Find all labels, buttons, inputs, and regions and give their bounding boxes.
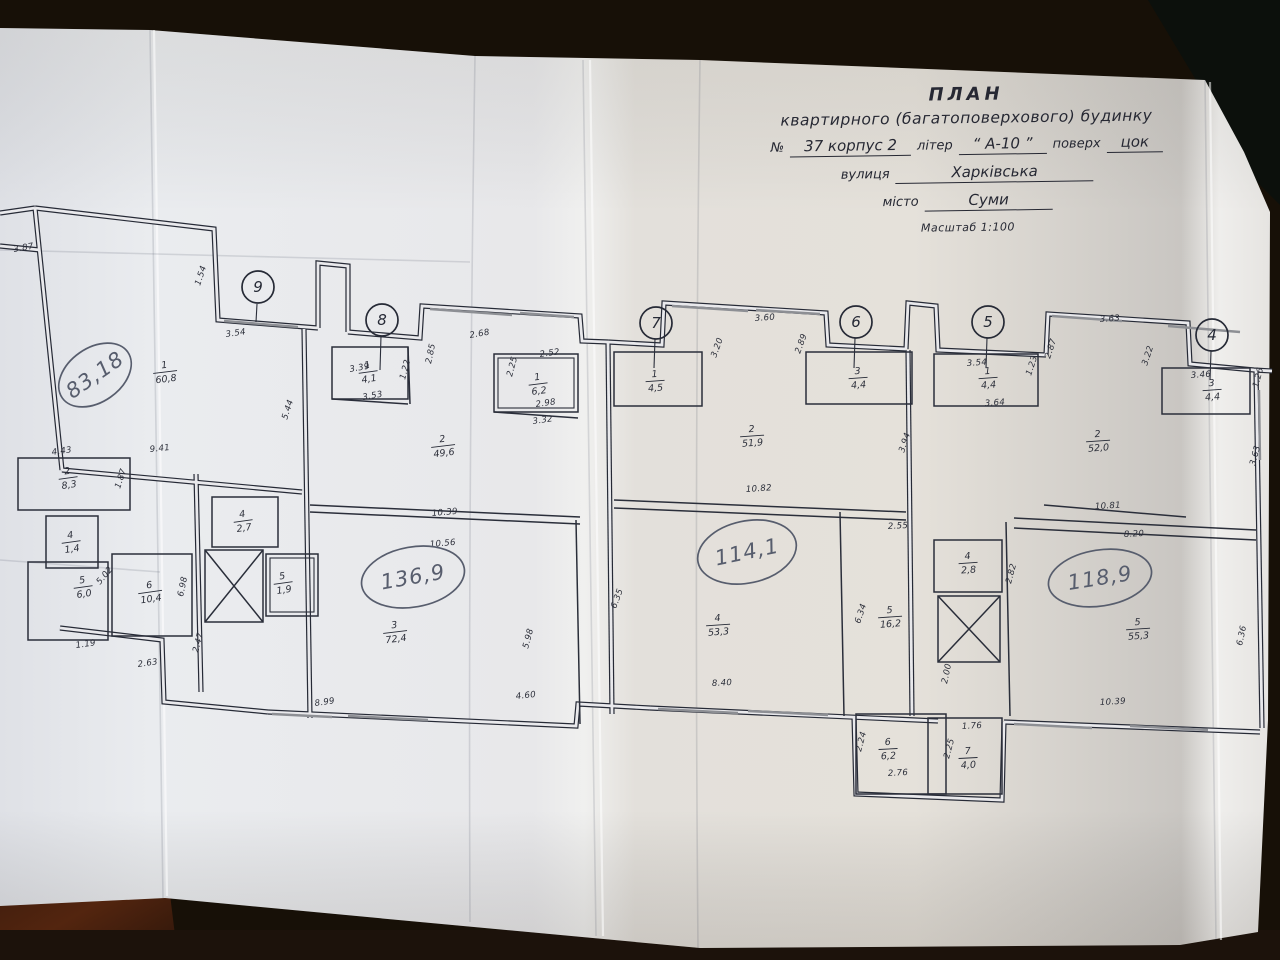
room-area: 4,4 bbox=[851, 379, 867, 391]
street-label: вулиця bbox=[841, 167, 890, 183]
room-number: 5 bbox=[1134, 617, 1141, 628]
liter-label: літер bbox=[917, 138, 953, 153]
axis-number-9: 9 bbox=[253, 278, 263, 296]
photo-of-floor-plan: 987654 160,828,341,456,0610,414,116,2249… bbox=[0, 0, 1280, 960]
room-number: 4 bbox=[964, 551, 971, 562]
room-area: 6,0 bbox=[76, 588, 92, 601]
city-label: місто bbox=[882, 195, 918, 211]
axis-number-4: 4 bbox=[1207, 326, 1217, 344]
axis-number-7: 7 bbox=[651, 314, 661, 332]
room-area: 4,4 bbox=[981, 379, 997, 391]
room-area: 4,1 bbox=[361, 373, 377, 386]
room-area: 52,0 bbox=[1088, 442, 1110, 454]
room-number: 5 bbox=[886, 605, 893, 616]
dimension-label: 3.60 bbox=[755, 313, 776, 324]
room-area: 1,9 bbox=[276, 584, 292, 597]
plan-subtitle: квартирного (багатоповерхового) будинку bbox=[761, 106, 1171, 130]
room-number: 6 bbox=[884, 737, 891, 748]
axis-number-6: 6 bbox=[851, 313, 861, 331]
liter-value: “ А-10 ” bbox=[959, 134, 1047, 155]
number-value: 37 корпус 2 bbox=[790, 136, 911, 158]
room-number: 7 bbox=[964, 746, 971, 757]
room-area: 4,5 bbox=[648, 382, 664, 394]
room-area: 8,3 bbox=[61, 479, 77, 492]
dimension-label: 4.60 bbox=[515, 690, 536, 702]
dimension-label: 10.39 bbox=[1100, 697, 1127, 708]
dimension-label: 9.41 bbox=[149, 443, 170, 455]
room-area: 16,2 bbox=[880, 618, 902, 630]
room-number: 3 bbox=[854, 366, 861, 377]
room-number: 4 bbox=[714, 613, 721, 624]
room-area: 6,2 bbox=[881, 751, 897, 763]
room-area: 51,9 bbox=[742, 437, 764, 449]
dimension-label: 8.20 bbox=[1124, 529, 1145, 540]
room-area: 4,4 bbox=[1205, 391, 1221, 403]
room-area: 53,3 bbox=[708, 626, 730, 638]
title-block: ПЛАН квартирного (багатоповерхового) буд… bbox=[761, 81, 1173, 237]
dimension-label: 8.40 bbox=[712, 678, 733, 689]
room-number: 2 bbox=[1094, 429, 1101, 440]
dimension-label: 3.64 bbox=[985, 398, 1006, 409]
floor-label: поверх bbox=[1052, 136, 1100, 152]
room-area: 55,3 bbox=[1128, 630, 1150, 642]
room-area: 1,4 bbox=[64, 543, 80, 556]
number-label: № bbox=[770, 141, 784, 156]
room-number: 2 bbox=[748, 424, 755, 435]
axis-number-5: 5 bbox=[983, 313, 993, 331]
dimension-label: 3.46 bbox=[1191, 370, 1212, 381]
room-area: 4,0 bbox=[961, 760, 977, 772]
street-value: Харківська bbox=[895, 161, 1093, 184]
plan-title: ПЛАН bbox=[761, 81, 1171, 108]
dimension-label: 3.54 bbox=[967, 358, 988, 369]
room-area: 6,2 bbox=[531, 385, 547, 398]
dimension-label: 1.76 bbox=[962, 721, 983, 732]
dimension-label: 2.76 bbox=[888, 768, 909, 779]
room-area: 2,8 bbox=[961, 564, 977, 576]
dimension-label: 10.82 bbox=[746, 483, 773, 495]
dimension-label: 10.81 bbox=[1095, 501, 1122, 512]
city-value: Суми bbox=[924, 190, 1052, 212]
dimension-label: 3.63 bbox=[1100, 314, 1121, 325]
dimension-label: 2.55 bbox=[888, 521, 909, 532]
room-number: 1 bbox=[651, 369, 658, 380]
floor-value: цок bbox=[1106, 132, 1163, 153]
room-area: 2,7 bbox=[236, 522, 252, 535]
axis-number-8: 8 bbox=[377, 311, 387, 329]
